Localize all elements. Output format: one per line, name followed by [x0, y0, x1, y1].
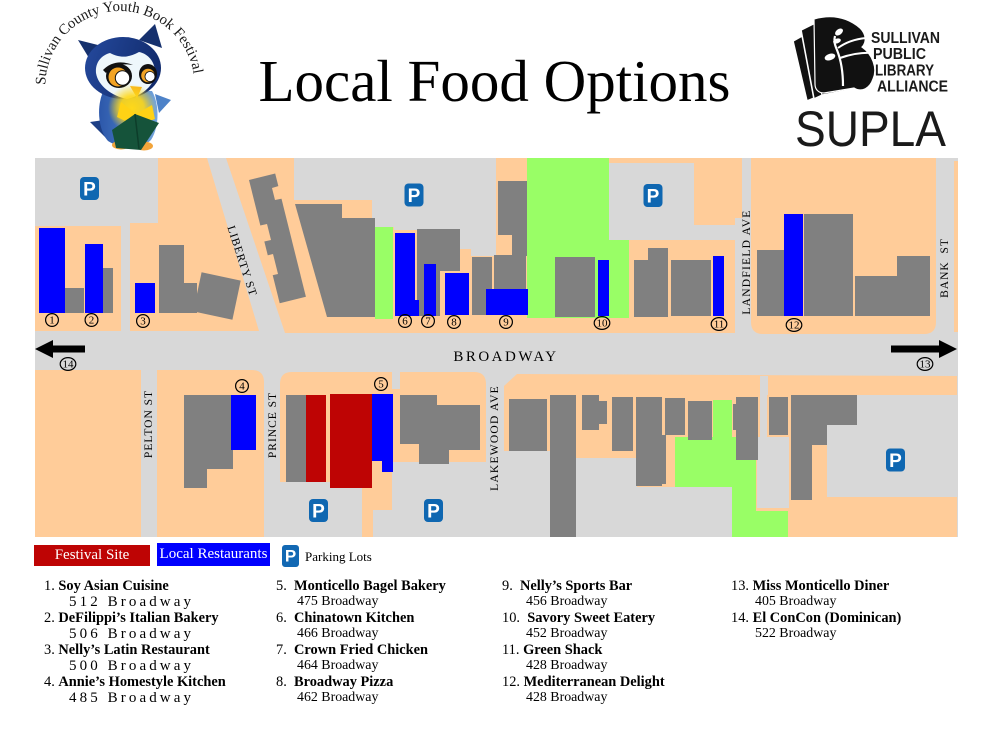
svg-text:LAKEWOOD AVE: LAKEWOOD AVE: [489, 385, 501, 491]
svg-text:3: 3: [140, 316, 146, 328]
svg-text:4: 4: [239, 381, 245, 393]
svg-text:8: 8: [451, 317, 457, 329]
svg-text:5: 5: [378, 379, 384, 391]
svg-text:12: 12: [789, 320, 800, 332]
svg-text:PRINCE ST: PRINCE ST: [267, 392, 279, 458]
svg-text:LANDFIELD AVE: LANDFIELD AVE: [741, 209, 753, 314]
svg-text:7: 7: [425, 316, 431, 328]
svg-text:6: 6: [402, 316, 408, 328]
svg-text:PELTON ST: PELTON ST: [143, 390, 155, 458]
svg-text:9: 9: [503, 317, 509, 329]
svg-text:13: 13: [920, 359, 932, 371]
svg-text:BANK ST: BANK ST: [939, 238, 951, 298]
svg-text:2: 2: [89, 315, 95, 327]
svg-text:1: 1: [49, 315, 55, 327]
svg-text:14: 14: [63, 359, 75, 371]
svg-text:P: P: [285, 547, 296, 566]
svg-text:11: 11: [714, 319, 725, 331]
svg-text:BROADWAY: BROADWAY: [453, 349, 558, 365]
svg-text:10: 10: [597, 318, 609, 330]
